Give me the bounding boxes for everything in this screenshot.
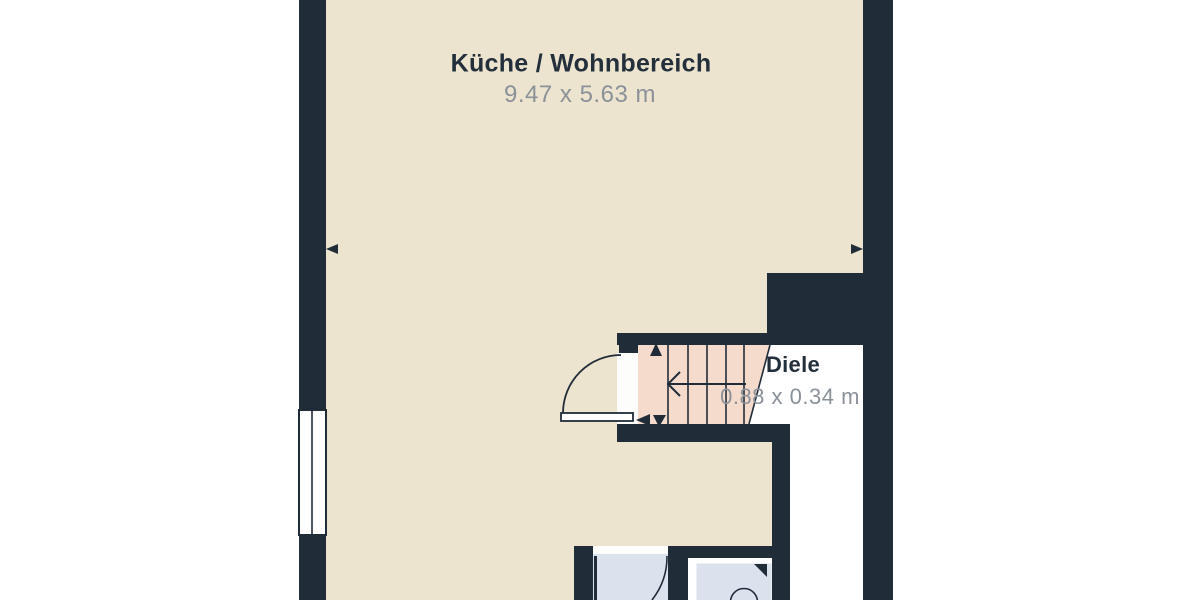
wall-hallway-left xyxy=(772,424,790,600)
floorplan: Küche / Wohnbereich 9.47 x 5.63 m Diele … xyxy=(0,0,1200,600)
wall-corner-block xyxy=(767,273,863,345)
room-label-hallway: Diele xyxy=(766,352,820,378)
stair-door-leaf xyxy=(561,413,633,421)
bathroom xyxy=(593,546,668,600)
wall-shower-top xyxy=(688,546,772,558)
wall-stairs-jamb xyxy=(619,333,638,353)
wall-stairs-bottom xyxy=(617,424,790,442)
wall-bath-left xyxy=(574,546,593,600)
room-dimensions-hallway: 0.88 x 0.34 m xyxy=(720,384,860,410)
wall-stairs-top xyxy=(617,333,772,345)
window-left xyxy=(299,410,326,535)
bath-door-opening xyxy=(593,546,668,554)
wall-bath-right xyxy=(668,546,688,600)
room-label-kitchen: Küche / Wohnbereich xyxy=(451,50,712,79)
bath-door-leaf xyxy=(594,556,597,600)
shower xyxy=(688,558,772,600)
room-dimensions-kitchen: 9.47 x 5.63 m xyxy=(504,81,656,109)
wall-right xyxy=(863,0,893,600)
